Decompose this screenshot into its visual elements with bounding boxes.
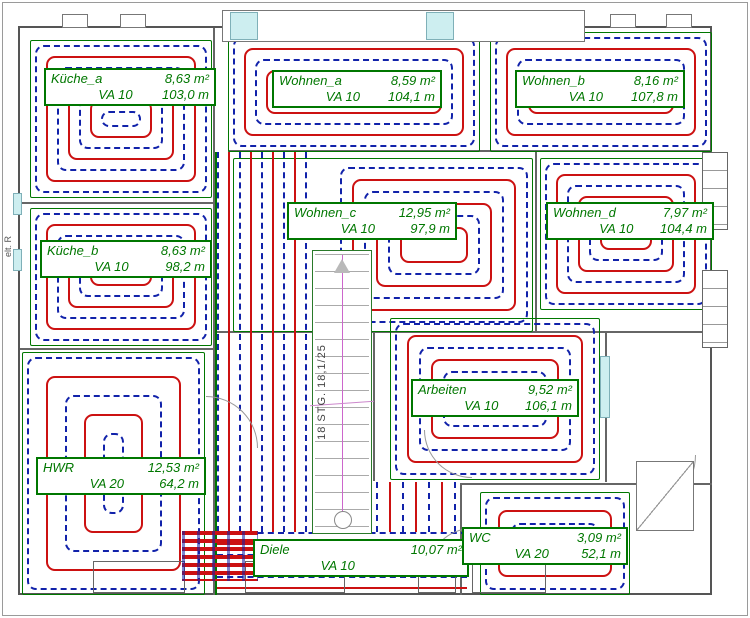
room-area: 8,16 m² xyxy=(634,73,678,89)
return-pipe-line xyxy=(261,152,263,532)
room-area: 8,59 m² xyxy=(391,73,435,89)
room-name: Diele xyxy=(260,542,290,558)
pipe-length: 104,1 m xyxy=(388,89,435,105)
room-name: Wohnen_d xyxy=(553,205,616,221)
pipe-spacing: VA 10 xyxy=(569,89,603,105)
interior-wall xyxy=(20,202,214,204)
room-area: 7,97 m² xyxy=(663,205,707,221)
return-pipe-line xyxy=(402,482,404,532)
room-name: Küche_a xyxy=(51,71,102,87)
room-area: 8,63 m² xyxy=(161,243,205,259)
room-label-wohnen_d: Wohnen_d7,97 m²VA 10104,4 m xyxy=(546,202,714,240)
room-area: 8,63 m² xyxy=(165,71,209,87)
room-name: Arbeiten xyxy=(418,382,466,398)
room-label-wc: WC3,09 m²VA 2052,1 m xyxy=(462,527,628,565)
stair-direction-arrow-icon xyxy=(334,259,350,273)
return-pipe-line xyxy=(217,152,219,532)
room-name: WC xyxy=(469,530,491,546)
manifold-return-pipes xyxy=(182,531,258,581)
pipe-length: 103,0 m xyxy=(162,87,209,103)
window-glass xyxy=(426,12,454,40)
pipe-length: 98,2 m xyxy=(165,259,205,275)
window-glass xyxy=(13,249,22,271)
window-frame xyxy=(702,270,728,348)
window-glass xyxy=(230,12,258,40)
return-pipe-ring xyxy=(101,111,141,127)
stair-label: 18 STG. 18,1/25 xyxy=(314,274,330,511)
interior-wall xyxy=(535,152,537,332)
supply-pipe-line xyxy=(415,482,417,532)
window-frame xyxy=(666,14,692,28)
interior-wall xyxy=(373,331,375,481)
return-pipe-line xyxy=(376,482,378,532)
room-label-wohnen_b: Wohnen_b8,16 m²VA 10107,8 m xyxy=(515,70,685,108)
floorplan-heating-drawing: 18 STG. 18,1/25 elt. R Küche_a8,63 m²VA … xyxy=(0,0,750,618)
window-frame xyxy=(472,561,546,593)
window-glass xyxy=(13,193,22,215)
pipe-spacing: VA 10 xyxy=(94,259,128,275)
stair-start-circle xyxy=(334,511,352,529)
room-area: 12,95 m² xyxy=(399,205,450,221)
room-area: 10,07 m² xyxy=(411,542,462,558)
window-frame xyxy=(222,10,585,42)
pipe-length: 106,1 m xyxy=(525,398,572,414)
staircase: 18 STG. 18,1/25 xyxy=(312,250,372,534)
pipe-length: 64,2 m xyxy=(159,476,199,492)
pipe-length: 104,4 m xyxy=(660,221,707,237)
supply-pipe-line xyxy=(441,482,443,532)
heating-pipe-run xyxy=(376,482,460,532)
interior-wall xyxy=(20,348,214,350)
supply-pipe-line xyxy=(228,152,230,532)
pipe-spacing: VA 10 xyxy=(326,89,360,105)
pipe-length: 107,8 m xyxy=(631,89,678,105)
pipe-spacing: VA 10 xyxy=(599,221,633,237)
stair-walkline xyxy=(342,255,343,515)
room-label-kueche_b: Küche_b8,63 m²VA 1098,2 m xyxy=(40,240,212,278)
pipe-spacing: VA 10 xyxy=(98,87,132,103)
pipe-length: 97,9 m xyxy=(410,221,450,237)
pipe-spacing: VA 20 xyxy=(90,476,124,492)
supply-pipe-line xyxy=(389,482,391,532)
pipe-spacing: VA 10 xyxy=(321,558,355,574)
return-pipe-line xyxy=(283,152,285,532)
room-label-hwr: HWR12,53 m²VA 2064,2 m xyxy=(36,457,206,495)
window-frame xyxy=(120,14,146,28)
return-pipe-line xyxy=(239,152,241,532)
window-frame xyxy=(62,14,88,28)
supply-pipe-line xyxy=(272,152,274,532)
room-label-wohnen_c: Wohnen_c12,95 m²VA 1097,9 m xyxy=(287,202,457,240)
room-zone-kueche_a xyxy=(30,40,212,198)
room-name: Wohnen_a xyxy=(279,73,342,89)
pipe-spacing: VA 20 xyxy=(515,546,549,562)
room-label-arbeiten: Arbeiten9,52 m²VA 10106,1 m xyxy=(411,379,579,417)
room-area: 3,09 m² xyxy=(577,530,621,546)
pipe-length: 52,1 m xyxy=(581,546,621,562)
room-name: Wohnen_c xyxy=(294,205,356,221)
door-panel xyxy=(636,461,694,531)
room-area: 9,52 m² xyxy=(528,382,572,398)
room-name: Wohnen_b xyxy=(522,73,585,89)
pipe-spacing: VA 10 xyxy=(341,221,375,237)
pipe-spacing: VA 10 xyxy=(464,398,498,414)
room-area: 12,53 m² xyxy=(148,460,199,476)
window-frame xyxy=(610,14,636,28)
window-glass xyxy=(600,356,610,418)
room-label-diele: Diele10,07 m²VA 10 xyxy=(253,539,469,577)
return-pipe-line xyxy=(428,482,430,532)
room-label-kueche_a: Küche_a8,63 m²VA 10103,0 m xyxy=(44,68,216,106)
room-label-wohnen_a: Wohnen_a8,59 m²VA 10104,1 m xyxy=(272,70,442,108)
room-name: Küche_b xyxy=(47,243,98,259)
room-name: HWR xyxy=(43,460,74,476)
heating-manifold xyxy=(182,531,258,581)
supply-pipe-line xyxy=(250,152,252,532)
return-pipe-line xyxy=(454,482,456,532)
window-frame xyxy=(93,561,185,593)
